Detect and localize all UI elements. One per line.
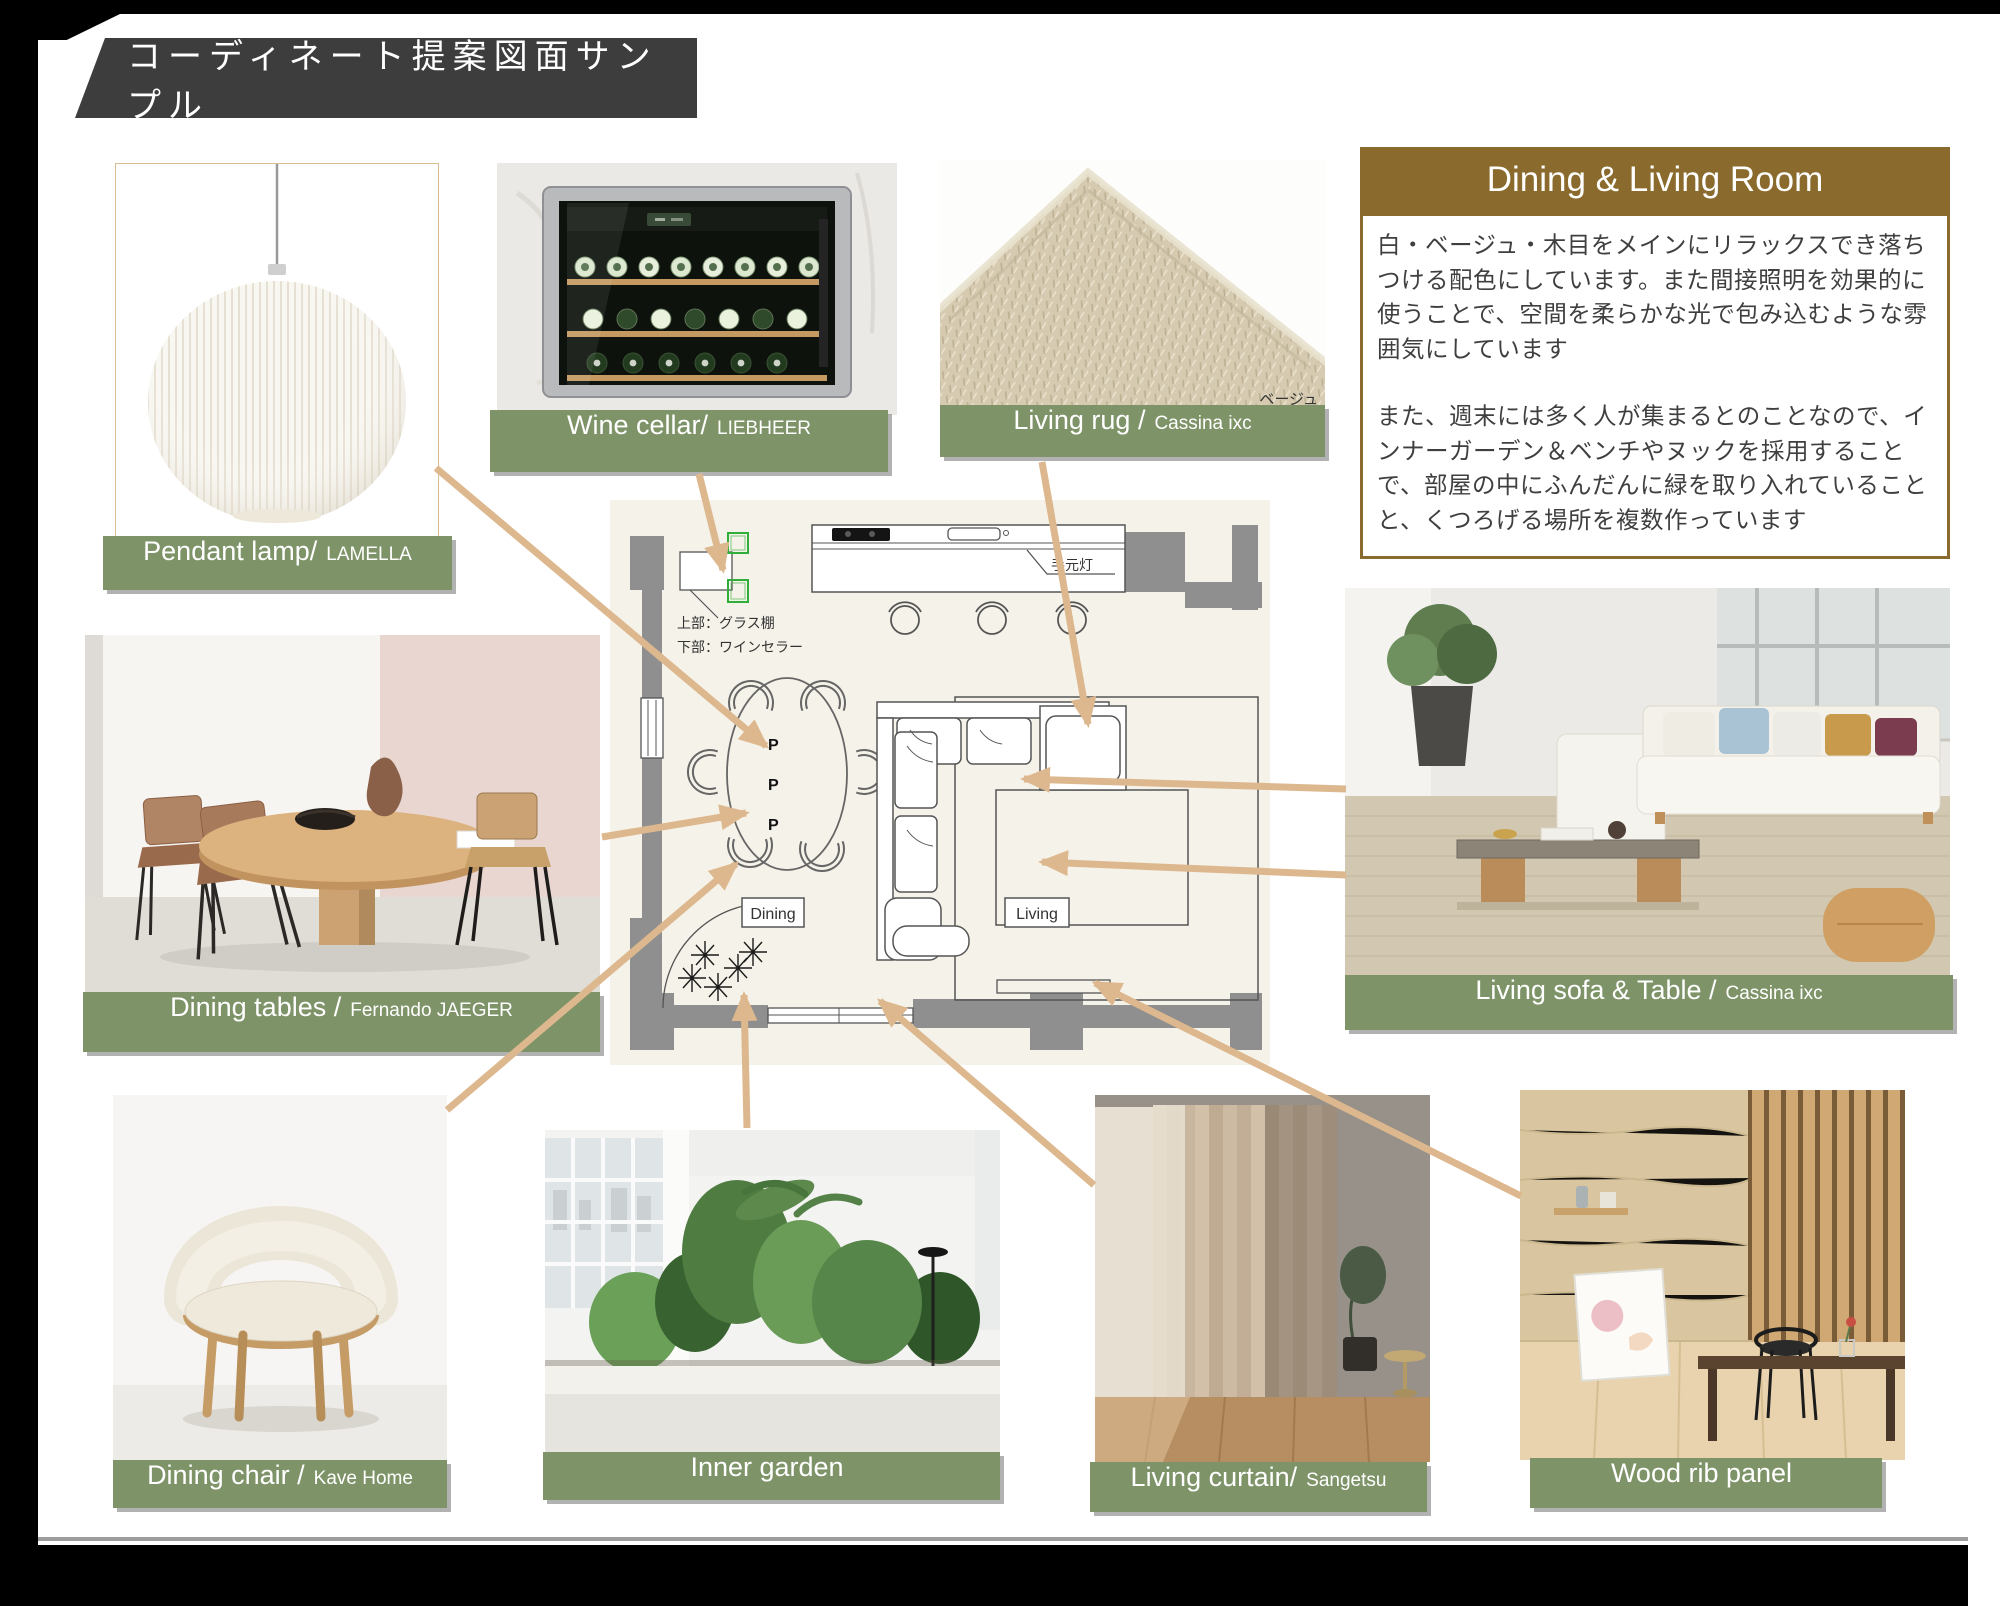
inner-garden-label: Inner garden bbox=[543, 1452, 1000, 1500]
pendant-lamp-label-text: Pendant lamp/ bbox=[143, 536, 317, 567]
plan-living-label: Living bbox=[1016, 906, 1058, 923]
info-paragraph-2: また、週末には多く人が集まるとのことなので、インナーガーデン＆ベンチやヌックを採… bbox=[1377, 399, 1933, 537]
info-paragraph-1: 白・ベージュ・木目をメインにリラックスでき落ちつける配色にしています。また間接照… bbox=[1377, 228, 1933, 366]
living-sofa-photo bbox=[1345, 588, 1950, 975]
banner-accent bbox=[38, 14, 120, 40]
info-panel-header: Dining & Living Room bbox=[1360, 147, 1950, 213]
plan-pendant-mark-1: P bbox=[768, 737, 779, 754]
dining-chair-label-text: Dining chair / bbox=[147, 1460, 305, 1491]
living-rug-illustration bbox=[940, 160, 1325, 405]
wine-cellar-illustration bbox=[497, 163, 897, 415]
living-curtain-illustration bbox=[1095, 1095, 1430, 1462]
dining-tables-illustration bbox=[85, 635, 600, 992]
wood-rib-panel-photo bbox=[1520, 1090, 1905, 1460]
wood-rib-panel-label-text: Wood rib panel bbox=[1611, 1458, 1792, 1489]
plan-pendant-mark-2: P bbox=[768, 777, 779, 794]
living-sofa-label: Living sofa & Table / Cassina ixc bbox=[1345, 975, 1953, 1030]
inner-garden-label-text: Inner garden bbox=[690, 1452, 843, 1483]
page-title: コーディネート提案図面サンプル bbox=[75, 29, 697, 127]
plan-pendant-mark-3: P bbox=[768, 817, 779, 834]
living-curtain-label-text: Living curtain/ bbox=[1131, 1462, 1298, 1493]
wine-cellar-photo bbox=[497, 163, 897, 415]
pendant-lamp-illustration bbox=[116, 164, 438, 537]
dining-tables-brand-text: Fernando JAEGER bbox=[350, 1000, 513, 1022]
frame-bottom bbox=[0, 1545, 1968, 1606]
living-rug-label: Living rug / Cassina ixc bbox=[940, 405, 1325, 457]
living-curtain-photo bbox=[1095, 1095, 1430, 1462]
frame-bottom-rule bbox=[38, 1537, 1968, 1541]
inner-garden-illustration bbox=[545, 1130, 1000, 1452]
dining-tables-label: Dining tables / Fernando JAEGER bbox=[83, 992, 600, 1052]
inner-garden-photo bbox=[545, 1130, 1000, 1452]
living-sofa-illustration bbox=[1345, 588, 1950, 975]
dining-chair-photo bbox=[113, 1095, 447, 1460]
frame-left bbox=[0, 0, 38, 1606]
dining-tables-photo bbox=[85, 635, 600, 992]
dining-chair-label: Dining chair / Kave Home bbox=[113, 1460, 447, 1508]
plan-cabinet-note-2: 下部：ワインセラー bbox=[677, 639, 803, 655]
info-panel-body: 白・ベージュ・木目をメインにリラックスでき落ちつける配色にしています。また間接照… bbox=[1360, 213, 1950, 559]
pendant-lamp-brand-text: LAMELLA bbox=[326, 544, 412, 566]
living-rug-brand-text: Cassina ixc bbox=[1154, 413, 1251, 435]
pendant-lamp-label: Pendant lamp/ LAMELLA bbox=[103, 536, 452, 590]
plan-hand-light-note: 手元灯 bbox=[1051, 557, 1093, 573]
dining-chair-brand-text: Kave Home bbox=[314, 1468, 413, 1490]
living-rug-label-text: Living rug / bbox=[1013, 405, 1145, 436]
wood-rib-panel-label: Wood rib panel bbox=[1530, 1458, 1882, 1508]
floor-plan-drawing: 手元灯 上部：グラス棚 下部：ワインセラー bbox=[610, 500, 1270, 1065]
plan-cabinet-note-1: 上部：グラス棚 bbox=[677, 615, 775, 631]
proposal-board: コーディネート提案図面サンプル Pendant lamp/ LAMELLA bbox=[0, 0, 2000, 1606]
wine-cellar-label-text: Wine cellar/ bbox=[567, 410, 708, 441]
living-curtain-label: Living curtain/ Sangetsu bbox=[1090, 1462, 1427, 1512]
frame-top bbox=[0, 0, 2000, 14]
wine-cellar-brand-text: LIEBHEER bbox=[717, 418, 811, 440]
living-sofa-label-text: Living sofa & Table / bbox=[1475, 975, 1716, 1006]
living-sofa-brand-text: Cassina ixc bbox=[1726, 983, 1823, 1005]
title-banner: コーディネート提案図面サンプル bbox=[75, 38, 697, 118]
pendant-lamp-photo bbox=[115, 163, 439, 538]
dining-tables-label-text: Dining tables / bbox=[170, 992, 341, 1023]
plan-dining-label: Dining bbox=[750, 906, 795, 923]
dining-chair-illustration bbox=[113, 1095, 447, 1460]
living-rug-photo bbox=[940, 160, 1325, 405]
info-panel-title: Dining & Living Room bbox=[1487, 160, 1824, 200]
floor-plan: 手元灯 上部：グラス棚 下部：ワインセラー bbox=[610, 500, 1270, 1065]
wine-cellar-label: Wine cellar/ LIEBHEER bbox=[490, 410, 888, 472]
living-curtain-brand-text: Sangetsu bbox=[1306, 1470, 1386, 1492]
wood-rib-panel-illustration bbox=[1520, 1090, 1905, 1460]
